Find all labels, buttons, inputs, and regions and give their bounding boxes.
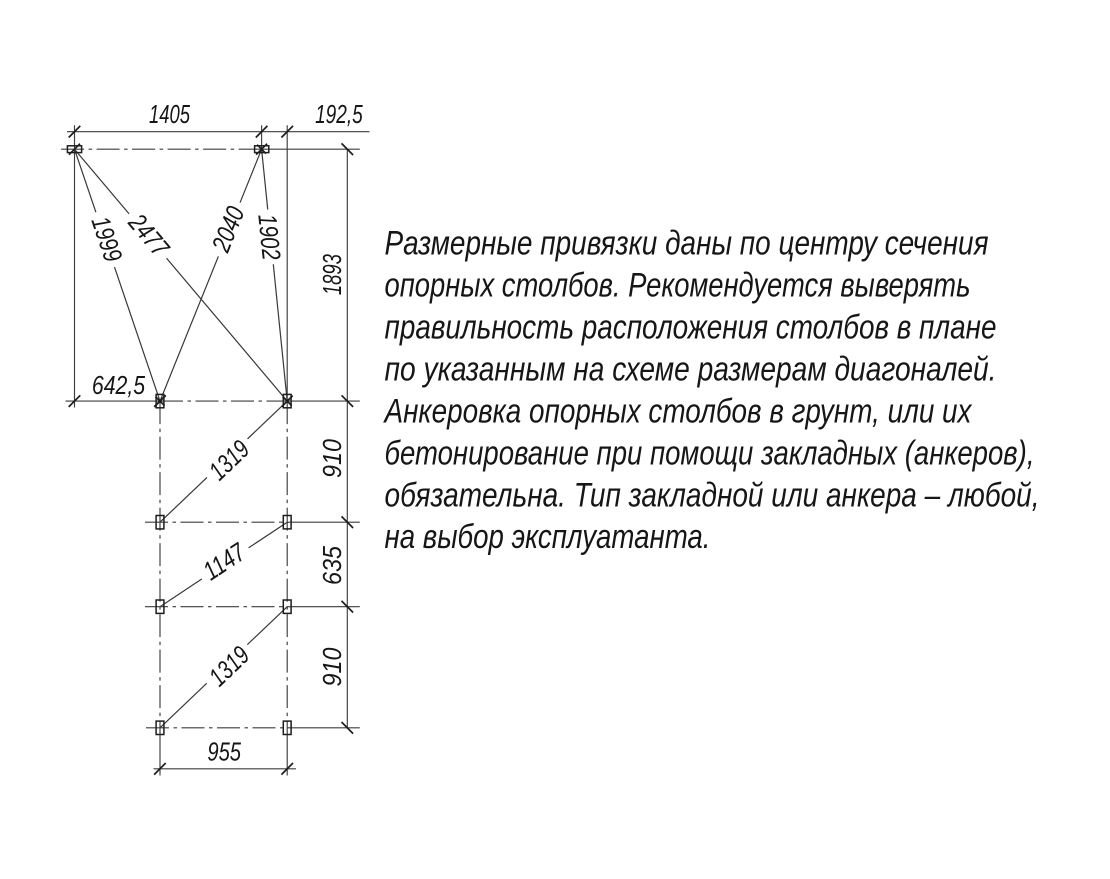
svg-text:Анкеровка опорных столбов в гр: Анкеровка опорных столбов в грунт, или и… (383, 392, 972, 430)
svg-text:910: 910 (317, 439, 347, 478)
svg-text:910: 910 (317, 647, 347, 686)
svg-text:обязательна. Тип закладной или: обязательна. Тип закладной или анкера – … (385, 476, 1040, 514)
svg-text:Размерные привязки даны по цен: Размерные привязки даны по центру сечени… (385, 225, 989, 263)
svg-text:опорных столбов. Рекомендуется: опорных столбов. Рекомендуется выверять (385, 267, 971, 305)
svg-text:1902: 1902 (252, 213, 287, 262)
svg-text:на выбор эксплуатанта.: на выбор эксплуатанта. (385, 518, 711, 556)
svg-text:642,5: 642,5 (92, 370, 146, 400)
svg-text:635: 635 (317, 546, 347, 585)
svg-text:по указанным на схеме размерам: по указанным на схеме размерам диагонале… (385, 351, 997, 389)
svg-text:1405: 1405 (149, 99, 190, 129)
svg-text:955: 955 (207, 736, 241, 766)
svg-text:192,5: 192,5 (315, 99, 363, 129)
svg-text:1893: 1893 (317, 254, 347, 295)
svg-text:бетонирование при помощи закла: бетонирование при помощи закладных (анке… (385, 434, 1035, 472)
svg-text:правильность расположения стол: правильность расположения столбов в план… (385, 309, 997, 347)
